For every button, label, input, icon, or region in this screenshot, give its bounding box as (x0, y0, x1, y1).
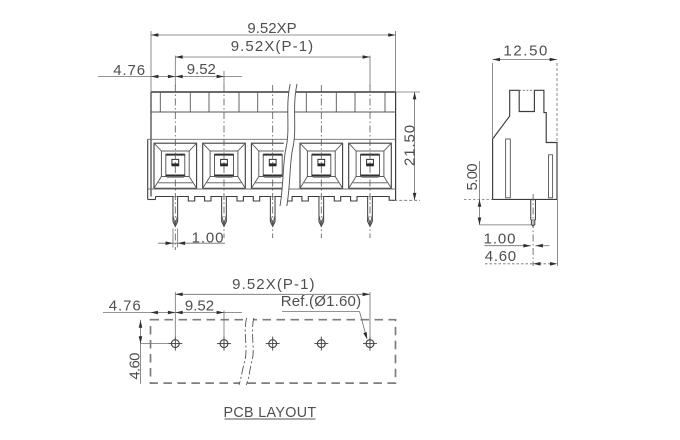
svg-text:4.76: 4.76 (109, 297, 142, 314)
svg-text:5.00: 5.00 (464, 164, 481, 191)
svg-text:21.50: 21.50 (401, 124, 418, 166)
svg-text:9.52X(P-1): 9.52X(P-1) (231, 38, 315, 55)
svg-text:9.52X(P-1): 9.52X(P-1) (232, 276, 316, 293)
svg-text:4.60: 4.60 (485, 248, 517, 265)
svg-text:4.76: 4.76 (113, 62, 146, 79)
svg-text:Ref.(Ø1.60): Ref.(Ø1.60) (281, 293, 362, 310)
svg-text:1.00: 1.00 (192, 229, 225, 246)
svg-text:9.52: 9.52 (185, 297, 214, 314)
svg-text:12.50: 12.50 (503, 43, 549, 60)
svg-text:1.00: 1.00 (484, 230, 517, 247)
svg-text:9.52: 9.52 (187, 61, 216, 78)
svg-text:4.60: 4.60 (127, 353, 144, 380)
svg-text:9.52XP: 9.52XP (247, 20, 296, 37)
